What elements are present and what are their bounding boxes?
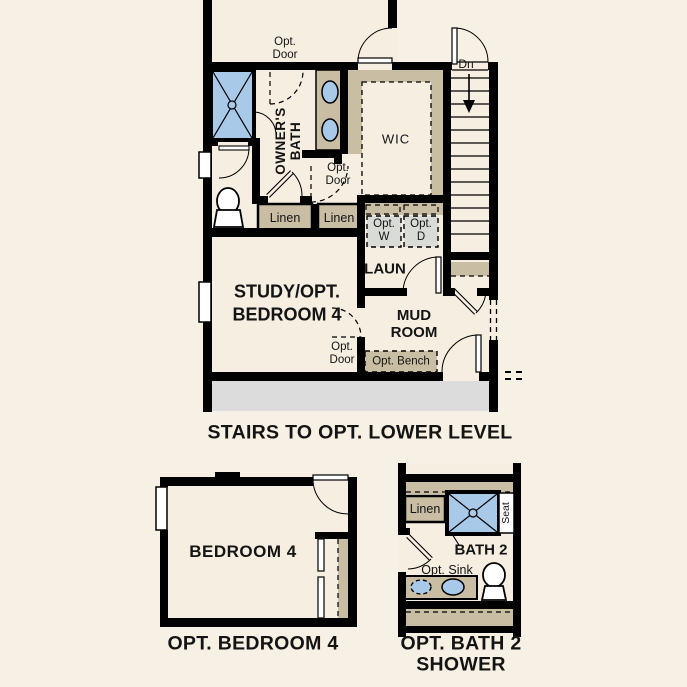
opt-bench-label: Opt. Bench xyxy=(372,355,430,368)
opt-door-label: Opt. Door xyxy=(273,36,298,62)
floor-area xyxy=(203,0,397,62)
stair-landing-shelf xyxy=(451,262,489,276)
door-leaf xyxy=(358,58,392,63)
wic-shelf-top xyxy=(348,70,443,82)
bedroom4-label: BEDROOM 4 xyxy=(189,542,296,562)
closet-door-panel xyxy=(318,577,324,618)
door-leaf xyxy=(476,335,481,372)
opt-sink-label: Opt. Sink xyxy=(421,563,472,577)
door-leaf xyxy=(219,146,249,150)
main-caption: STAIRS TO OPT. LOWER LEVEL xyxy=(207,422,512,443)
opt-sink xyxy=(411,580,431,594)
window xyxy=(199,152,211,178)
mud-room-label: MUD ROOM xyxy=(391,307,438,342)
sink xyxy=(322,81,338,103)
closet-door-panel xyxy=(318,539,324,571)
opt-washer-label: Opt. W xyxy=(373,218,395,244)
toilet xyxy=(482,563,506,600)
sink xyxy=(322,119,338,141)
door-leaf xyxy=(313,475,348,480)
window xyxy=(199,282,211,322)
door-leaf xyxy=(436,257,441,293)
sink xyxy=(442,579,464,595)
lower-stairs-area xyxy=(212,381,489,411)
owners-shower xyxy=(211,70,254,140)
opt-dryer-label: Opt. D xyxy=(410,218,432,244)
wic-shelf-left xyxy=(348,82,362,154)
owners-bath-label: OWNER'S BATH xyxy=(273,107,303,174)
bedroom4-caption: OPT. BEDROOM 4 xyxy=(167,633,338,654)
wic-shelf-right xyxy=(431,82,443,195)
floorplan-page: Opt. Door OWNER'S BATH WIC Dn Opt. Door … xyxy=(0,0,687,687)
linen-label: Linen xyxy=(270,211,301,225)
opt-door-label: Opt. Door xyxy=(330,341,355,367)
window xyxy=(156,487,167,530)
door-leaf xyxy=(452,28,457,64)
laundry-label: LAUN xyxy=(364,260,406,277)
bath2-label: BATH 2 xyxy=(454,541,507,558)
seat-label: Seat xyxy=(500,502,512,524)
wic-label: WIC xyxy=(382,133,410,148)
bath2-shower xyxy=(447,492,499,534)
bath2-caption: OPT. BATH 2 SHOWER xyxy=(400,634,521,677)
linen-label: Linen xyxy=(410,502,441,516)
study-label: STUDY/OPT. BEDROOM 4 xyxy=(232,281,341,326)
stairs-down-label: Dn xyxy=(458,58,473,72)
main-plan xyxy=(199,0,527,412)
opt-door-label: Opt. Door xyxy=(326,162,351,188)
linen-label: Linen xyxy=(324,211,355,225)
